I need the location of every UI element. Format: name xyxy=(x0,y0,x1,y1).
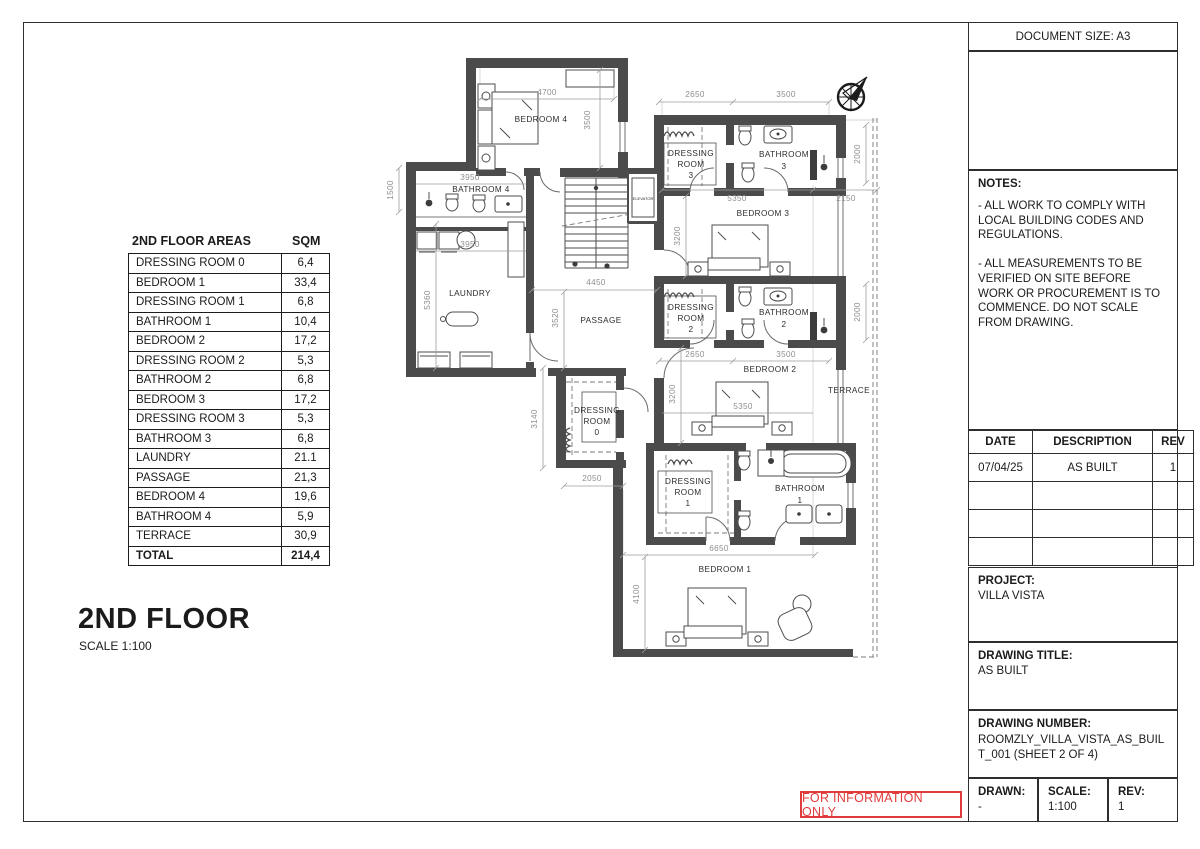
room-label-bathroom-1-line2: 1 xyxy=(798,496,803,505)
dimension-label: 2050 xyxy=(582,474,602,483)
room-label-dressing-2-line2: ROOM xyxy=(677,314,704,323)
area-name: DRESSING ROOM 2 xyxy=(129,351,282,371)
areas-unit-header: SQM xyxy=(292,234,320,248)
revision-header-row: DATE DESCRIPTION REV xyxy=(969,431,1194,454)
area-name: DRESSING ROOM 3 xyxy=(129,410,282,430)
drawing-number-label: DRAWING NUMBER: xyxy=(978,718,1168,730)
scale-box: SCALE: 1:100 xyxy=(1038,778,1108,822)
floor-scale: SCALE 1:100 xyxy=(79,639,152,653)
drawing-number-value: ROOMZLY_VILLA_VISTA_AS_BUILT_001 (SHEET … xyxy=(978,733,1168,763)
dimension-label: 3200 xyxy=(673,226,682,246)
room-label-bathroom-3-line2: 3 xyxy=(782,162,787,171)
area-name: BATHROOM 2 xyxy=(129,371,282,391)
drawn-box: DRAWN: - xyxy=(968,778,1038,822)
area-sqm: 17,2 xyxy=(282,332,330,352)
room-label-dressing-1-line2: ROOM xyxy=(674,488,701,497)
area-sqm: 6,4 xyxy=(282,254,330,274)
dimension-label: 3200 xyxy=(668,384,677,404)
dimension-label: 3520 xyxy=(551,308,560,328)
revision-header-description: DESCRIPTION xyxy=(1033,431,1153,454)
drawing-sheet: ELEVATOR xyxy=(0,0,1200,849)
dimension-label: 2150 xyxy=(836,194,856,203)
area-name: BEDROOM 3 xyxy=(129,390,282,410)
room-label-dressing-0-line3: 0 xyxy=(595,428,600,437)
floor-title: 2ND FLOOR xyxy=(78,603,250,636)
notes-title: NOTES: xyxy=(978,178,1168,190)
area-sqm: 17,2 xyxy=(282,390,330,410)
revision-date xyxy=(969,510,1033,538)
area-row: TOTAL 214,4 xyxy=(129,546,330,566)
area-name: DRESSING ROOM 1 xyxy=(129,293,282,313)
area-name: BEDROOM 1 xyxy=(129,273,282,293)
drawing-title-label: DRAWING TITLE: xyxy=(978,650,1168,662)
area-row: PASSAGE 21,3 xyxy=(129,468,330,488)
room-label-bathroom-2: BATHROOM xyxy=(759,308,809,317)
revision-rev: 1 xyxy=(1153,454,1194,482)
revision-header-rev: REV xyxy=(1153,431,1194,454)
revision-date: 07/04/25 xyxy=(969,454,1033,482)
for-information-only-stamp: FOR INFORMATION ONLY xyxy=(800,791,962,818)
dimension-label: 4700 xyxy=(537,88,557,97)
dimension-label: 2000 xyxy=(853,302,862,322)
area-sqm: 30,9 xyxy=(282,527,330,547)
dimension-label: 2650 xyxy=(685,90,705,99)
area-sqm: 5,3 xyxy=(282,410,330,430)
dimension-label: 4100 xyxy=(632,584,641,604)
room-label-bedroom-4: BEDROOM 4 xyxy=(515,115,568,124)
room-label-dressing-1-line3: 1 xyxy=(686,499,691,508)
area-name: BEDROOM 4 xyxy=(129,488,282,508)
revision-table: DATE DESCRIPTION REV 07/04/25 AS BUILT 1 xyxy=(968,430,1194,566)
dimension-label: 2000 xyxy=(853,144,862,164)
dimension-label: 1500 xyxy=(386,180,395,200)
room-label-elevator: ELEVATOR xyxy=(633,196,654,201)
area-row: BATHROOM 2 6,8 xyxy=(129,371,330,391)
rev-box: REV: 1 xyxy=(1108,778,1178,822)
rev-value: 1 xyxy=(1118,801,1168,813)
area-row: BEDROOM 3 17,2 xyxy=(129,390,330,410)
area-sqm: 214,4 xyxy=(282,546,330,566)
area-row: DRESSING ROOM 3 5,3 xyxy=(129,410,330,430)
room-label-bathroom-1: BATHROOM xyxy=(775,484,825,493)
drawn-label: DRAWN: xyxy=(978,786,1028,798)
drawing-title-value: AS BUILT xyxy=(978,665,1168,677)
revision-row: 07/04/25 AS BUILT 1 xyxy=(969,454,1194,482)
dimension-label: 2650 xyxy=(685,350,705,359)
room-label-dressing-3-line3: 3 xyxy=(689,171,694,180)
area-sqm: 6,8 xyxy=(282,429,330,449)
revision-rev xyxy=(1153,510,1194,538)
stairs xyxy=(562,178,631,269)
area-row: BEDROOM 1 33,4 xyxy=(129,273,330,293)
dimension-label: 3950 xyxy=(460,240,480,249)
area-row: BATHROOM 3 6,8 xyxy=(129,429,330,449)
area-row: DRESSING ROOM 2 5,3 xyxy=(129,351,330,371)
revision-row xyxy=(969,510,1194,538)
project-value: VILLA VISTA xyxy=(978,590,1168,602)
area-sqm: 5,9 xyxy=(282,507,330,527)
area-sqm: 19,6 xyxy=(282,488,330,508)
area-sqm: 21.1 xyxy=(282,449,330,469)
dimension-label: 3500 xyxy=(776,350,796,359)
area-name: TOTAL xyxy=(129,546,282,566)
area-sqm: 5,3 xyxy=(282,351,330,371)
revision-row xyxy=(969,482,1194,510)
area-name: LAUNDRY xyxy=(129,449,282,469)
area-sqm: 6,8 xyxy=(282,293,330,313)
area-row: BATHROOM 4 5,9 xyxy=(129,507,330,527)
area-name: TERRACE xyxy=(129,527,282,547)
drawing-title-box: DRAWING TITLE: AS BUILT xyxy=(968,642,1178,710)
area-row: DRESSING ROOM 1 6,8 xyxy=(129,293,330,313)
room-label-terrace: TERRACE xyxy=(828,386,870,395)
revision-description xyxy=(1033,538,1153,566)
area-row: LAUNDRY 21.1 xyxy=(129,449,330,469)
revision-date xyxy=(969,538,1033,566)
dimension-label: 3140 xyxy=(530,409,539,429)
scale-value: 1:100 xyxy=(1048,801,1098,813)
area-name: BATHROOM 4 xyxy=(129,507,282,527)
notes-box: NOTES: - ALL WORK TO COMPLY WITH LOCAL B… xyxy=(968,170,1178,430)
room-label-dressing-2-line3: 2 xyxy=(689,325,694,334)
dimension-label: 3500 xyxy=(583,110,592,130)
notes-paragraph-1: - ALL WORK TO COMPLY WITH LOCAL BUILDING… xyxy=(978,199,1168,243)
area-sqm: 10,4 xyxy=(282,312,330,332)
dimension-label: 3950 xyxy=(460,173,480,182)
document-size-box: DOCUMENT SIZE: A3 xyxy=(968,22,1178,51)
room-label-dressing-3-line2: ROOM xyxy=(677,160,704,169)
area-row: BATHROOM 1 10,4 xyxy=(129,312,330,332)
dimension-label: 5350 xyxy=(727,194,747,203)
compass-icon xyxy=(838,77,867,110)
areas-table-title: 2ND FLOOR AREAS xyxy=(132,234,251,248)
area-sqm: 21,3 xyxy=(282,468,330,488)
area-name: BEDROOM 2 xyxy=(129,332,282,352)
notes-paragraph-2: - ALL MEASUREMENTS TO BE VERIFIED ON SIT… xyxy=(978,257,1168,331)
area-row: BEDROOM 4 19,6 xyxy=(129,488,330,508)
revision-date xyxy=(969,482,1033,510)
room-label-dressing-0: DRESSING xyxy=(574,406,620,415)
area-name: BATHROOM 3 xyxy=(129,429,282,449)
revision-header-date: DATE xyxy=(969,431,1033,454)
room-label-bedroom-1: BEDROOM 1 xyxy=(699,565,752,574)
revision-rev xyxy=(1153,482,1194,510)
room-label-bathroom-2-line2: 2 xyxy=(782,320,787,329)
room-label-laundry: LAUNDRY xyxy=(449,289,491,298)
revision-row xyxy=(969,538,1194,566)
scale-label: SCALE: xyxy=(1048,786,1098,798)
room-label-passage: PASSAGE xyxy=(580,316,621,325)
dimension-label: 5360 xyxy=(423,290,432,310)
room-label-bedroom-3: BEDROOM 3 xyxy=(737,209,790,218)
document-size-text: DOCUMENT SIZE: A3 xyxy=(1016,31,1131,43)
drawing-number-box: DRAWING NUMBER: ROOMZLY_VILLA_VISTA_AS_B… xyxy=(968,710,1178,778)
drawn-value: - xyxy=(978,801,1028,813)
room-label-dressing-2: DRESSING xyxy=(668,303,714,312)
logo-box xyxy=(968,51,1178,170)
areas-table: DRESSING ROOM 0 6,4 BEDROOM 1 33,4 DRESS… xyxy=(128,253,330,566)
stamp-text: FOR INFORMATION ONLY xyxy=(802,791,960,819)
room-label-bedroom-2: BEDROOM 2 xyxy=(744,365,797,374)
elevator: ELEVATOR xyxy=(628,173,658,222)
dimension-label: 5350 xyxy=(733,402,753,411)
project-label: PROJECT: xyxy=(978,575,1168,587)
room-label-bathroom-3: BATHROOM xyxy=(759,150,809,159)
area-name: DRESSING ROOM 0 xyxy=(129,254,282,274)
dimension-label: 4450 xyxy=(586,278,606,287)
revision-description xyxy=(1033,482,1153,510)
area-name: BATHROOM 1 xyxy=(129,312,282,332)
room-label-dressing-3: DRESSING xyxy=(668,149,714,158)
project-box: PROJECT: VILLA VISTA xyxy=(968,567,1178,642)
room-label-bathroom-4: BATHROOM 4 xyxy=(452,185,510,194)
room-label-dressing-1: DRESSING xyxy=(665,477,711,486)
area-row: DRESSING ROOM 0 6,4 xyxy=(129,254,330,274)
rev-label: REV: xyxy=(1118,786,1168,798)
revision-rev xyxy=(1153,538,1194,566)
dimension-label: 3500 xyxy=(776,90,796,99)
area-sqm: 6,8 xyxy=(282,371,330,391)
area-sqm: 33,4 xyxy=(282,273,330,293)
area-row: TERRACE 30,9 xyxy=(129,527,330,547)
area-name: PASSAGE xyxy=(129,468,282,488)
dimension-label: 6650 xyxy=(709,544,729,553)
room-label-dressing-0-line2: ROOM xyxy=(583,417,610,426)
revision-description: AS BUILT xyxy=(1033,454,1153,482)
revision-description xyxy=(1033,510,1153,538)
area-row: BEDROOM 2 17,2 xyxy=(129,332,330,352)
